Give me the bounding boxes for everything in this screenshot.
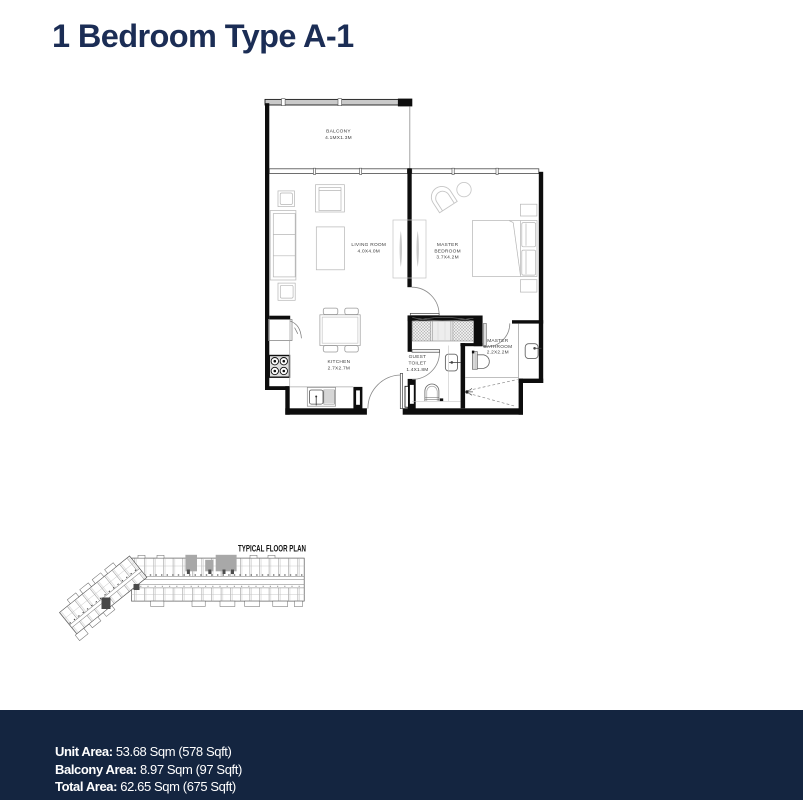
svg-text:GUEST: GUEST: [409, 354, 427, 360]
svg-text:4.0X4.0M: 4.0X4.0M: [358, 248, 381, 254]
svg-text:2.7X2.7M: 2.7X2.7M: [328, 365, 351, 371]
svg-text:TYPICAL FLOOR PLAN: TYPICAL FLOOR PLAN: [238, 544, 306, 555]
svg-text:3.7X4.2M: 3.7X4.2M: [436, 255, 459, 261]
svg-text:MASTER: MASTER: [437, 242, 459, 248]
svg-text:4.1MX1.3M: 4.1MX1.3M: [325, 135, 352, 141]
svg-text:KITCHEN: KITCHEN: [327, 359, 350, 365]
svg-text:BATHROOM: BATHROOM: [483, 344, 512, 350]
svg-text:1.4X1.8M: 1.4X1.8M: [406, 367, 428, 373]
svg-text:2.2X2.2M: 2.2X2.2M: [487, 349, 509, 355]
svg-text:MASTER: MASTER: [487, 338, 509, 344]
svg-text:LIVING ROOM: LIVING ROOM: [351, 242, 386, 248]
svg-text:BEDROOM: BEDROOM: [434, 248, 461, 254]
svg-text:BALCONY: BALCONY: [326, 129, 351, 135]
svg-text:TOILET: TOILET: [408, 361, 426, 367]
